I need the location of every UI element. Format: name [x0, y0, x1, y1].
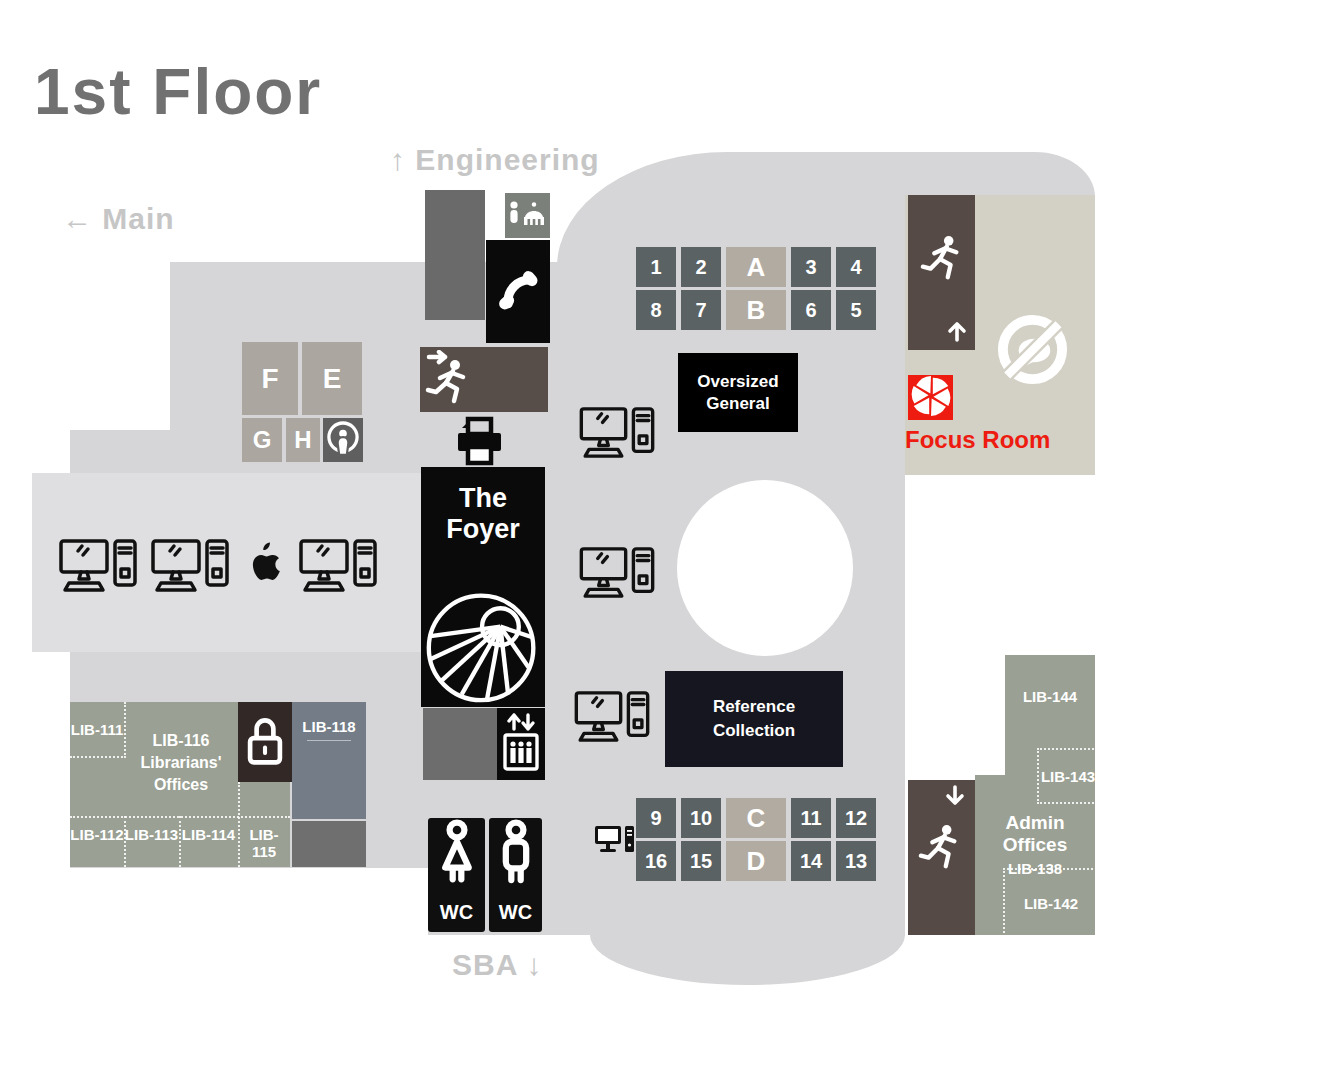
- left-arrow-icon: ←: [62, 202, 93, 235]
- computer-icon: [150, 538, 230, 598]
- no-talking-icon: [995, 312, 1070, 391]
- room-lib-116: LIB-116 Librarians' Offices: [124, 730, 238, 796]
- male-figure-icon: [495, 819, 537, 895]
- locked-room-block: [238, 702, 292, 782]
- stack-g: G: [242, 418, 282, 462]
- stack-f: F: [242, 342, 298, 415]
- prayer-room-block: [505, 193, 550, 238]
- up-arrow-icon: [946, 320, 968, 346]
- podcast-icon: [324, 418, 362, 462]
- shelf-8: 8: [636, 290, 676, 330]
- room-lib-118: LIB-118: [292, 702, 366, 819]
- apple-icon: [238, 534, 284, 596]
- up-arrow-icon: ↑: [390, 143, 406, 176]
- stack-h: H: [286, 418, 320, 462]
- spiral-stairs-icon: [423, 585, 543, 711]
- elevator-icon: [502, 711, 540, 777]
- shelf-10: 10: [681, 798, 721, 838]
- room-lib-143: LIB-143: [1037, 748, 1097, 804]
- atrium-circle: [677, 480, 853, 656]
- down-arrow-icon: ↓: [527, 948, 543, 981]
- shelf-7: 7: [681, 290, 721, 330]
- shelf-1: 1: [636, 247, 676, 287]
- room-lib-113-label: LIB-113: [124, 826, 179, 843]
- podcast-room-block: [323, 418, 363, 462]
- oversized-label-line2: General: [706, 393, 769, 415]
- person-icon: [509, 201, 519, 231]
- service-block-2: [423, 708, 497, 780]
- direction-engineering-label: Engineering: [415, 143, 599, 176]
- shelf-B: B: [726, 290, 786, 330]
- floorplate-bulge: [590, 885, 905, 985]
- computer-icon: [578, 546, 656, 604]
- shelf-11: 11: [791, 798, 831, 838]
- shelf-C: C: [726, 798, 786, 838]
- phone-icon: [492, 264, 544, 320]
- shelf-2: 2: [681, 247, 721, 287]
- room-lib-143-label: LIB-143: [1041, 768, 1095, 785]
- room-lib-116-name-line1: Librarians': [124, 752, 238, 774]
- focus-room-label: Focus Room: [905, 426, 1050, 454]
- lib-118-underline: [307, 740, 351, 741]
- shelf-13: 13: [836, 841, 876, 881]
- computer-icon: [573, 690, 651, 748]
- admin-offices-title: Admin Offices: [975, 812, 1095, 856]
- exit-stairs-down-block: [908, 780, 975, 935]
- shelf-16: 16: [636, 841, 676, 881]
- shelf-3: 3: [791, 247, 831, 287]
- reference-label-line2: Collection: [713, 719, 795, 743]
- computer-filled-icon: [595, 826, 635, 866]
- direction-sba: SBA ↓: [452, 948, 543, 982]
- lock-icon: [244, 713, 286, 771]
- computer-icon: [298, 538, 378, 598]
- oversized-label-line1: Oversized: [697, 371, 778, 393]
- page-title: 1st Floor: [34, 55, 322, 129]
- room-lib-115-label: LIB-115: [238, 826, 290, 860]
- direction-sba-label: SBA: [452, 948, 517, 981]
- phone-block: [486, 240, 550, 343]
- exit-runner-icon: [918, 822, 962, 880]
- exit-block-foyer: [420, 347, 548, 412]
- reference-collection-block: Reference Collection: [665, 671, 843, 767]
- foyer-label-line2: Foyer: [421, 514, 545, 545]
- aperture-icon: [911, 376, 951, 420]
- oversized-general-block: Oversized General: [678, 353, 798, 432]
- room-lib-116-number: LIB-116: [124, 730, 238, 752]
- room-lib-111-label: LIB-111: [71, 721, 124, 738]
- room-lib-111: LIB-111: [70, 702, 126, 758]
- focus-room-block: [908, 375, 953, 420]
- shelf-5: 5: [836, 290, 876, 330]
- wc-men-label: WC: [499, 901, 532, 924]
- reference-label-line1: Reference: [713, 695, 795, 719]
- female-figure-icon: [434, 819, 480, 895]
- exit-runner-icon: [920, 233, 964, 291]
- printer-icon: [456, 416, 504, 470]
- shelf-15: 15: [681, 841, 721, 881]
- room-lib-112-label: LIB-112: [70, 826, 124, 843]
- wc-women-label: WC: [440, 901, 473, 924]
- shelf-grid-top: 1 2 A 3 4 8 7 B 6 5: [636, 247, 876, 330]
- wc-men-block: WC: [489, 818, 542, 932]
- shelf-6: 6: [791, 290, 831, 330]
- direction-main-label: Main: [102, 202, 174, 235]
- shelf-grid-bottom: 9 10 C 11 12 16 15 D 14 13: [636, 798, 876, 881]
- mosque-icon: [521, 201, 547, 231]
- direction-engineering: ↑ Engineering: [390, 143, 600, 177]
- service-block-3: [292, 821, 366, 867]
- shelf-14: 14: [791, 841, 831, 881]
- room-lib-142-label: LIB-142: [1024, 895, 1078, 912]
- foyer-label-line1: The: [421, 483, 545, 514]
- room-lib-116-name-line2: Offices: [124, 774, 238, 796]
- foyer-block: The Foyer: [421, 467, 545, 707]
- room-lib-114-label: LIB-114: [179, 826, 238, 843]
- stack-e: E: [302, 342, 362, 415]
- down-arrow-icon: [944, 785, 966, 811]
- computer-icon: [578, 406, 656, 464]
- shelf-12: 12: [836, 798, 876, 838]
- shelf-9: 9: [636, 798, 676, 838]
- shelf-4: 4: [836, 247, 876, 287]
- floor-map: 1st Floor ↑ Engineering ← Main SBA ↓: [0, 0, 1324, 1070]
- direction-main: ← Main: [62, 202, 175, 236]
- room-lib-144-label: LIB-144: [1005, 688, 1095, 705]
- room-lib-142: LIB-142: [1003, 868, 1097, 937]
- exit-stairs-up-block: [908, 195, 975, 350]
- exit-runner-icon: [425, 350, 471, 410]
- elevator-block: [497, 708, 545, 780]
- shelf-A: A: [726, 247, 786, 287]
- computer-icon: [58, 538, 138, 598]
- room-lib-118-label: LIB-118: [292, 718, 366, 735]
- service-block: [425, 190, 485, 320]
- shelf-D: D: [726, 841, 786, 881]
- wc-women-block: WC: [428, 818, 485, 932]
